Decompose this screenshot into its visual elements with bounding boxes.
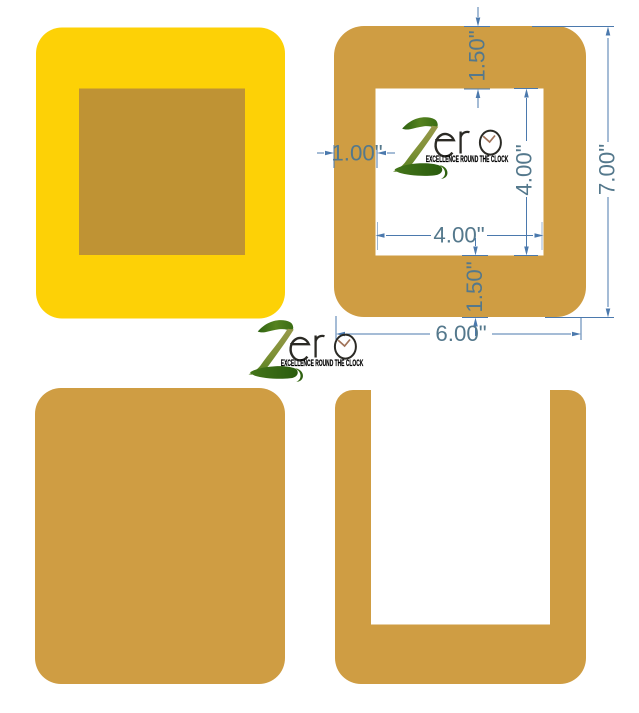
svg-text:1.50": 1.50" — [462, 261, 487, 312]
svg-text:4.00": 4.00" — [433, 223, 484, 248]
svg-text:1.00": 1.00" — [331, 141, 382, 166]
svg-text:1.50": 1.50" — [465, 30, 490, 81]
svg-text:4.00": 4.00" — [512, 144, 537, 195]
svg-text:7.00": 7.00" — [595, 144, 620, 195]
svg-text:6.00": 6.00" — [435, 321, 486, 346]
